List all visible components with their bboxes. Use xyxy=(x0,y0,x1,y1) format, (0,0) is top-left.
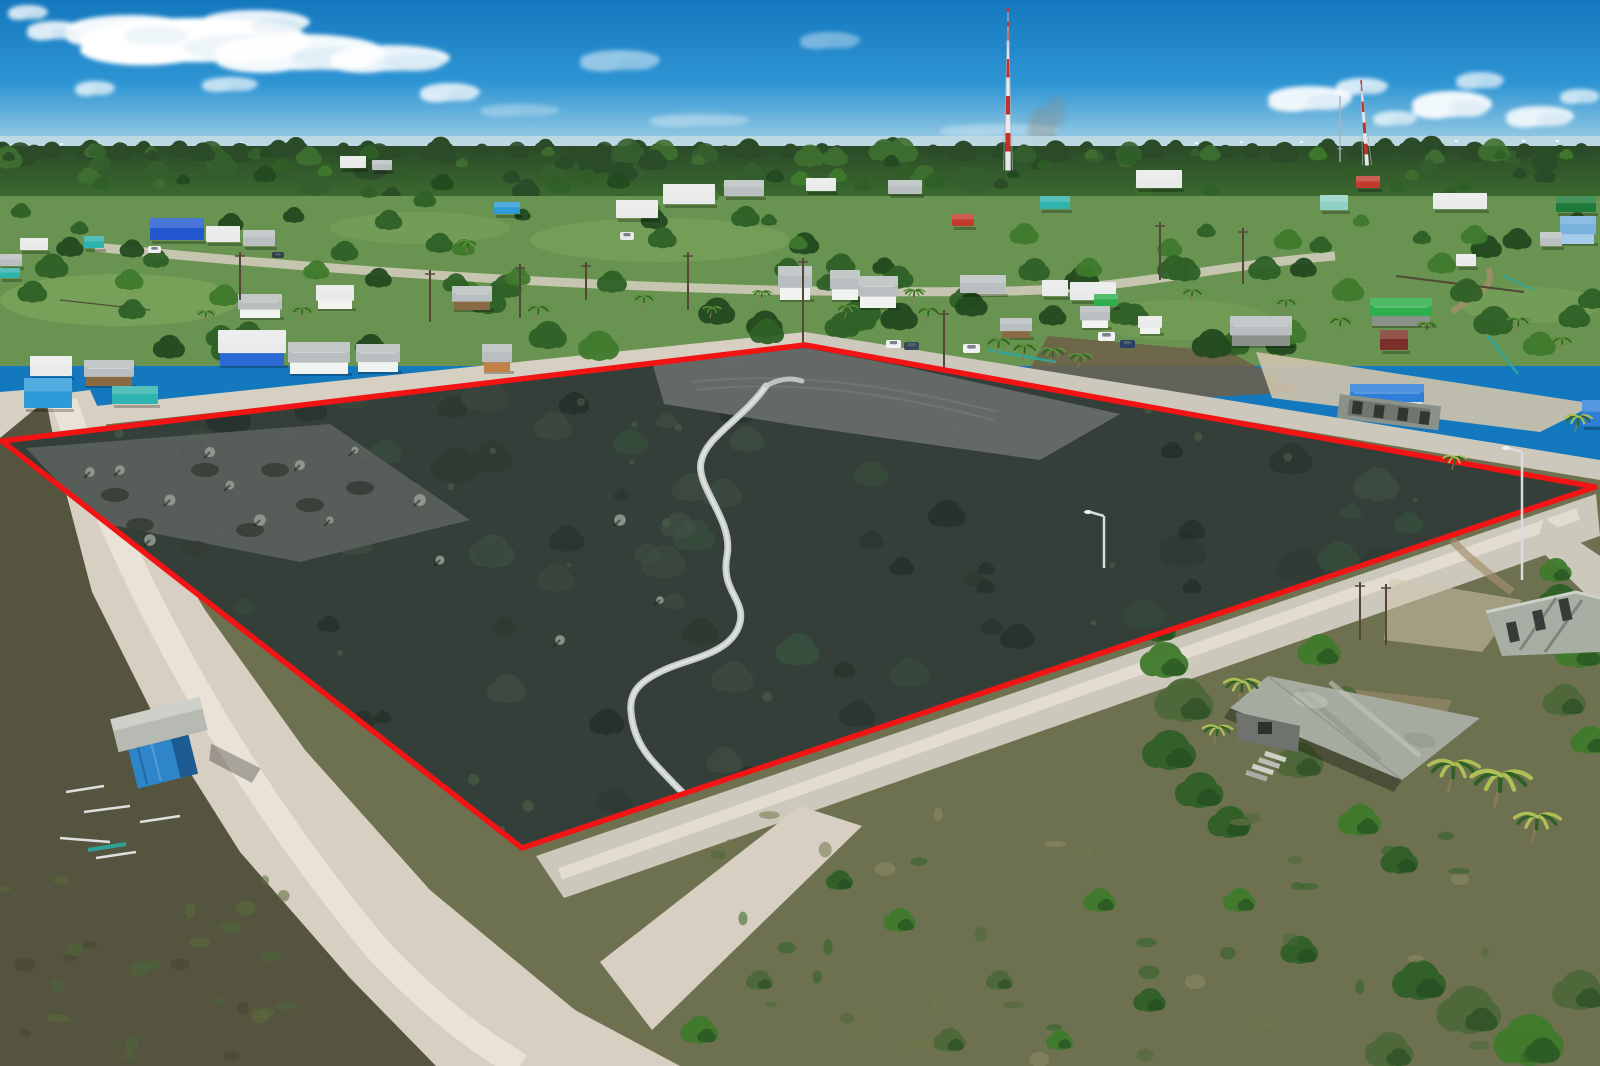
cloud xyxy=(420,83,480,102)
house xyxy=(482,344,514,374)
car xyxy=(963,344,980,353)
car xyxy=(1120,340,1135,348)
house xyxy=(206,226,242,246)
house xyxy=(238,294,284,320)
house xyxy=(372,160,394,174)
cloud xyxy=(200,10,310,36)
house xyxy=(1042,280,1070,300)
house xyxy=(356,344,402,374)
house xyxy=(340,156,368,172)
car xyxy=(620,232,634,240)
cloud xyxy=(800,32,860,49)
house xyxy=(316,285,356,311)
car xyxy=(904,342,919,350)
house xyxy=(1138,316,1164,336)
house xyxy=(1230,316,1294,348)
house xyxy=(84,236,106,252)
aerial-photo-canvas xyxy=(0,0,1600,1066)
dead-tree xyxy=(414,494,426,506)
house xyxy=(288,342,352,376)
house xyxy=(952,214,976,230)
house xyxy=(1000,318,1034,340)
cloud xyxy=(1412,91,1492,119)
cloud xyxy=(202,77,258,92)
house xyxy=(724,180,766,200)
house xyxy=(806,178,838,195)
house xyxy=(1433,193,1489,213)
house xyxy=(1540,232,1564,250)
house xyxy=(1556,196,1598,216)
house xyxy=(888,180,924,198)
house xyxy=(1320,195,1350,214)
house xyxy=(1040,196,1072,213)
house xyxy=(20,238,50,254)
cloud xyxy=(580,50,660,72)
cloud xyxy=(1560,89,1600,104)
cloud xyxy=(650,114,750,127)
house xyxy=(1456,254,1478,270)
house xyxy=(24,378,74,412)
house xyxy=(494,202,522,218)
house xyxy=(1356,176,1382,192)
house xyxy=(30,356,74,380)
cloud xyxy=(330,45,450,73)
house xyxy=(778,266,814,302)
house xyxy=(1560,216,1598,246)
cloud xyxy=(1456,72,1504,89)
car xyxy=(886,340,901,348)
house xyxy=(243,230,277,250)
aerial-photo xyxy=(0,0,1600,1066)
house xyxy=(0,268,22,282)
house xyxy=(0,254,24,270)
house xyxy=(84,360,136,388)
cloud xyxy=(480,104,560,117)
vegetation-blob xyxy=(1489,427,1513,444)
car xyxy=(272,252,284,258)
house xyxy=(858,276,900,310)
cloud xyxy=(8,5,48,20)
cloud xyxy=(1373,111,1417,126)
house xyxy=(452,286,494,312)
car xyxy=(148,246,161,253)
cloud xyxy=(65,15,195,47)
house xyxy=(218,330,288,368)
cloud xyxy=(27,21,83,40)
cloud xyxy=(1506,106,1574,128)
car xyxy=(1098,332,1115,341)
house xyxy=(1080,306,1112,330)
cloud xyxy=(75,81,115,96)
house xyxy=(830,270,862,302)
